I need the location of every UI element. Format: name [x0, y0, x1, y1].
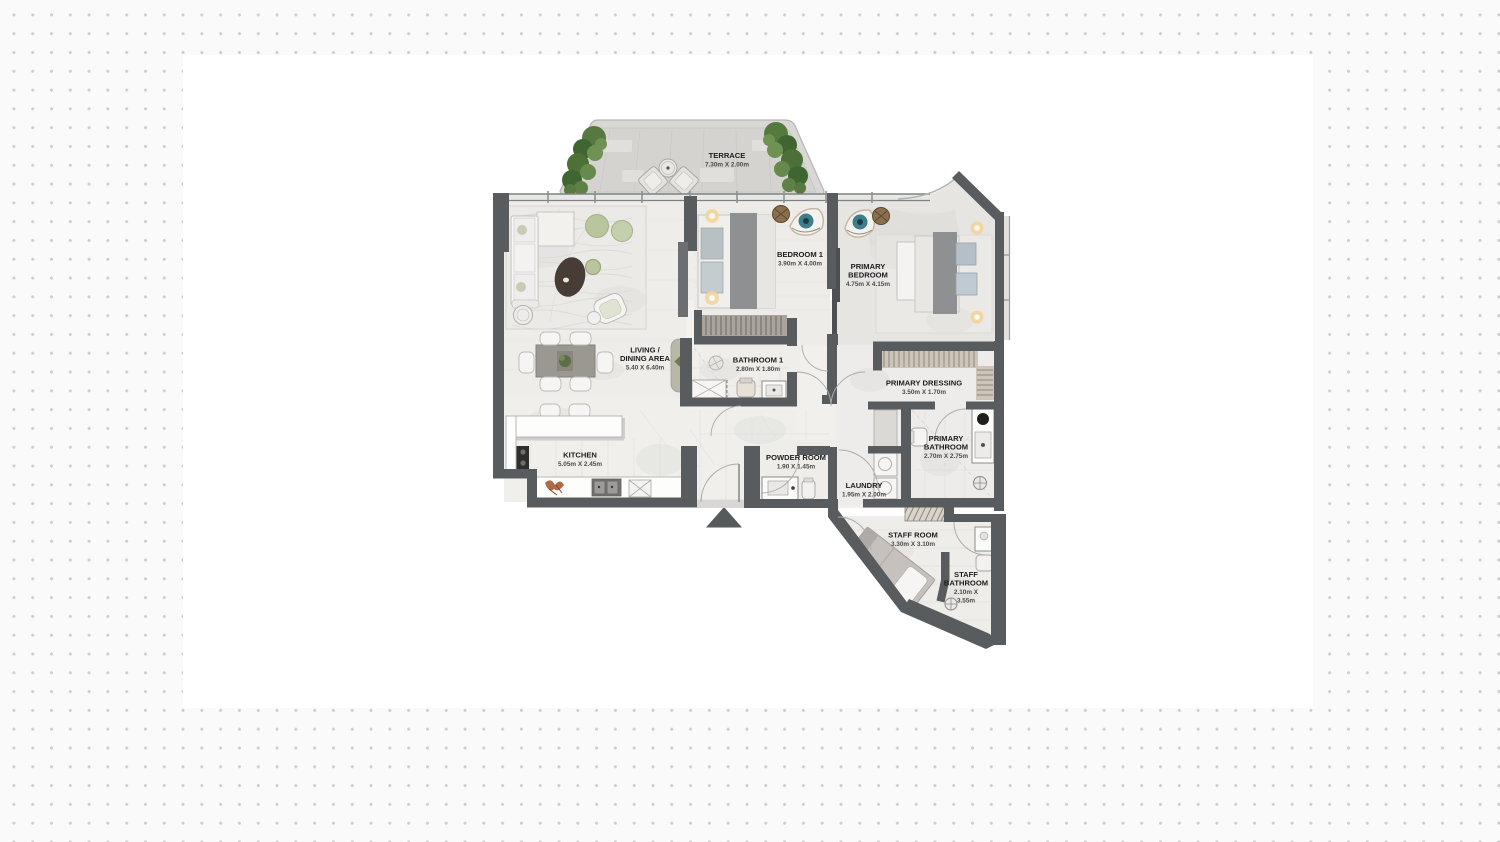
- svg-text:3.55m: 3.55m: [957, 598, 975, 605]
- svg-text:1.90 X 1.45m: 1.90 X 1.45m: [777, 464, 816, 471]
- svg-text:DINING AREA: DINING AREA: [620, 354, 670, 363]
- svg-text:3.90m X 4.00m: 3.90m X 4.00m: [778, 261, 822, 268]
- svg-text:4.75m X 4.15m: 4.75m X 4.15m: [846, 281, 890, 288]
- svg-text:BATHROOM: BATHROOM: [944, 579, 988, 588]
- svg-text:2.80m X 1.80m: 2.80m X 1.80m: [736, 366, 780, 373]
- svg-text:1.95m X 2.00m: 1.95m X 2.00m: [842, 492, 886, 499]
- svg-text:5.05m X 2.45m: 5.05m X 2.45m: [558, 461, 602, 468]
- svg-text:BEDROOM: BEDROOM: [848, 271, 888, 280]
- svg-text:TERRACE: TERRACE: [709, 151, 746, 160]
- svg-text:KITCHEN: KITCHEN: [563, 451, 597, 460]
- svg-text:5.40 X 6.40m: 5.40 X 6.40m: [626, 365, 665, 372]
- svg-text:STAFF ROOM: STAFF ROOM: [888, 531, 938, 540]
- svg-text:3.30m X 3.10m: 3.30m X 3.10m: [891, 541, 935, 548]
- svg-text:POWDER ROOM: POWDER ROOM: [766, 453, 826, 462]
- svg-text:7.30m X 2.00m: 7.30m X 2.00m: [705, 162, 749, 169]
- svg-text:PRIMARY DRESSING: PRIMARY DRESSING: [886, 379, 962, 388]
- svg-text:3.50m X 1.70m: 3.50m X 1.70m: [902, 389, 946, 396]
- svg-text:BEDROOM 1: BEDROOM 1: [777, 250, 824, 259]
- svg-text:LAUNDRY: LAUNDRY: [846, 481, 883, 490]
- svg-text:2.70m X 2.75m: 2.70m X 2.75m: [924, 453, 968, 460]
- svg-text:2.10m X: 2.10m X: [954, 589, 979, 596]
- svg-text:BATHROOM: BATHROOM: [924, 443, 968, 452]
- svg-text:BATHROOM 1: BATHROOM 1: [733, 356, 784, 365]
